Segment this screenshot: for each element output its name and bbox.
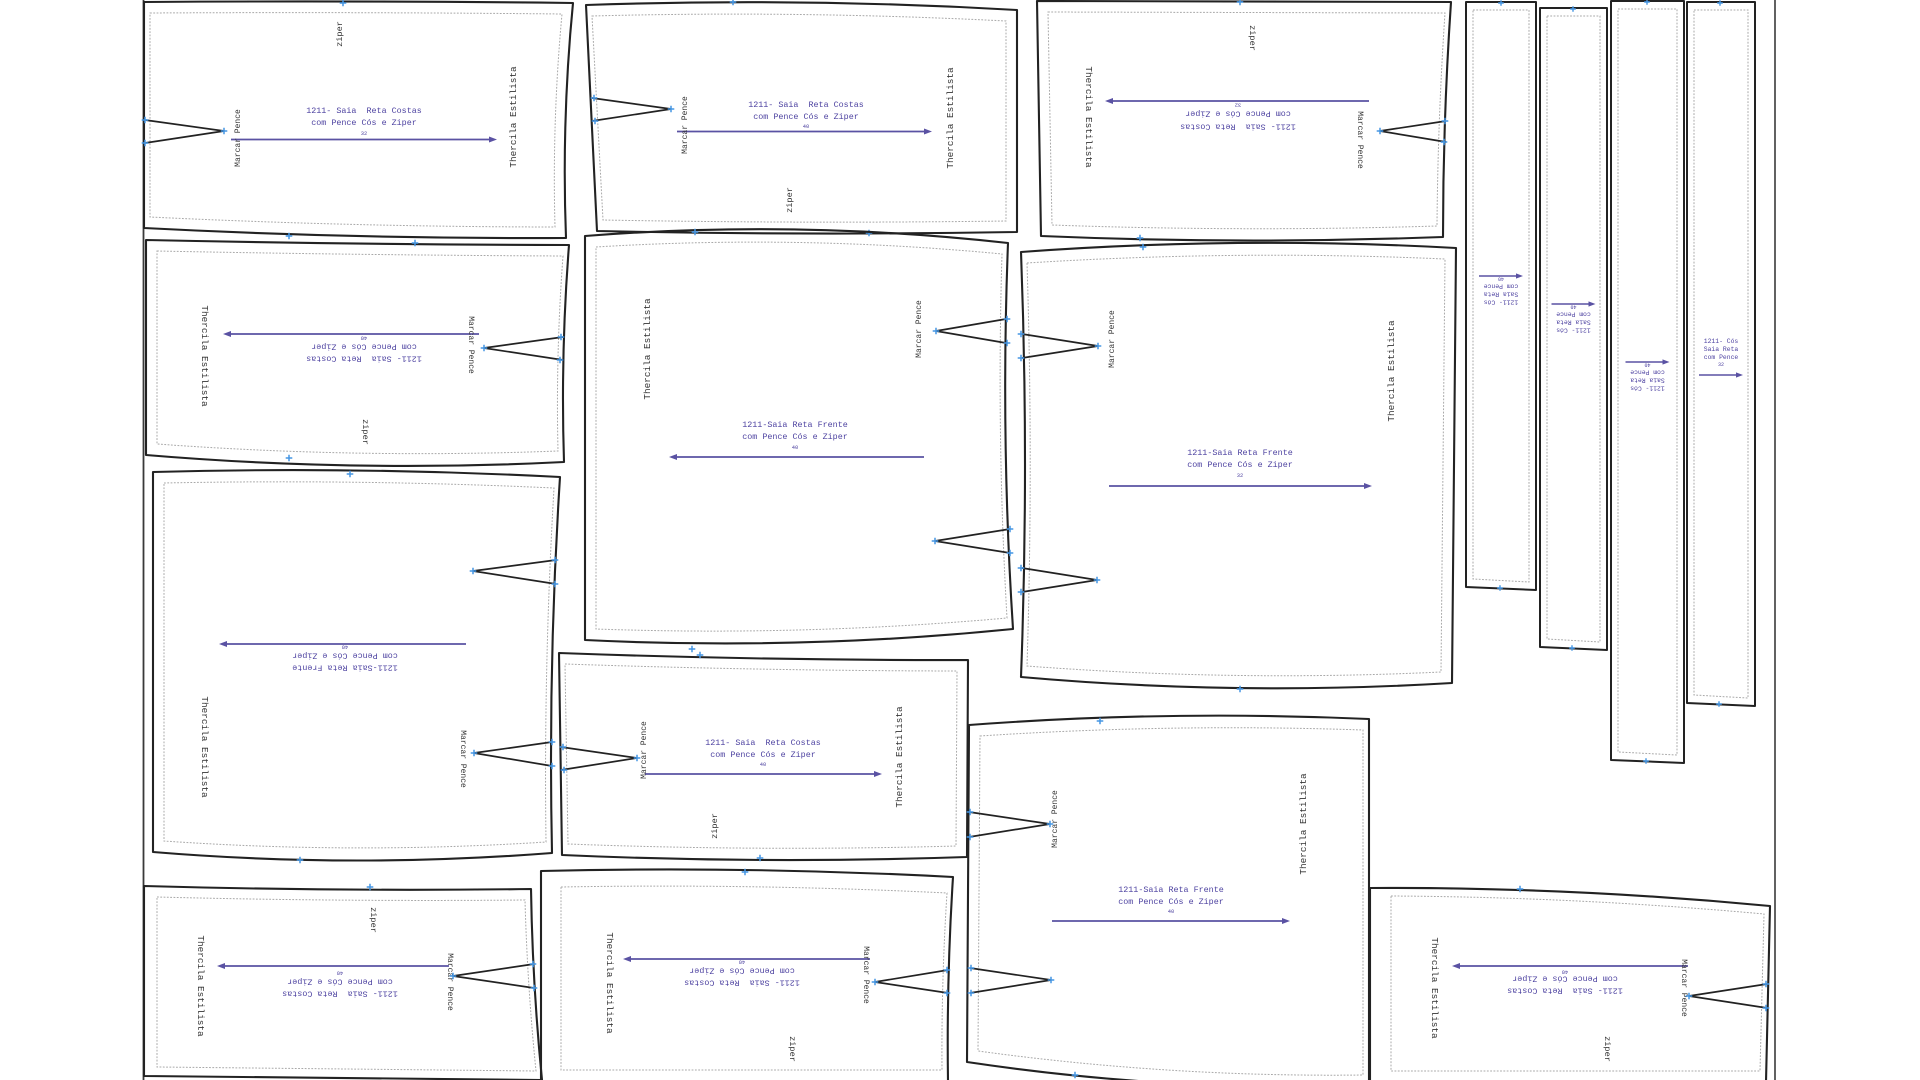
svg-text:1211- Saia Reta Costas: 1211- Saia Reta Costas [306,106,422,116]
svg-text:ziper: ziper [710,813,720,839]
svg-text:1211- Saia Reta Costas: 1211- Saia Reta Costas [748,100,864,110]
svg-text:com Pence: com Pence [1704,354,1739,361]
svg-text:Thercila Estilista: Thercila Estilista [199,305,210,407]
svg-text:32: 32 [1718,362,1724,368]
svg-text:40: 40 [803,124,809,130]
svg-text:Marcar Pence: Marcar Pence [861,946,870,1004]
svg-text:1211- Saia Reta Costas: 1211- Saia Reta Costas [705,738,821,748]
svg-text:1211- Saia Reta Costas: 1211- Saia Reta Costas [282,988,398,998]
svg-text:40: 40 [361,334,367,340]
svg-text:Marcar Pence: Marcar Pence [466,316,475,374]
svg-text:40: 40 [337,969,343,975]
svg-text:32: 32 [1237,473,1243,479]
svg-text:1211-Saia Reta Frente: 1211-Saia Reta Frente [1187,448,1293,458]
svg-text:com Pence: com Pence [1556,310,1591,317]
svg-text:Saia Reta: Saia Reta [1484,290,1519,297]
svg-text:Thercila Estilista: Thercila Estilista [642,298,653,400]
svg-text:1211- Cós: 1211- Cós [1484,298,1519,305]
svg-text:40: 40 [1168,909,1174,915]
svg-text:Thercila Estilista: Thercila Estilista [604,932,615,1034]
svg-text:com Pence Cós e Ziper: com Pence Cós e Ziper [1185,108,1291,118]
svg-text:1211- Cós: 1211- Cós [1630,384,1665,391]
svg-text:1211-Saia Reta Frente: 1211-Saia Reta Frente [742,420,848,430]
svg-text:Marcar Pence: Marcar Pence [234,109,243,167]
svg-text:Saia Reta: Saia Reta [1556,318,1591,325]
svg-text:1211- Cós: 1211- Cós [1556,326,1591,333]
svg-text:1211-Saia Reta Frente: 1211-Saia Reta Frente [292,662,398,672]
svg-text:com Pence: com Pence [1630,368,1665,375]
svg-text:40: 40 [1644,361,1650,367]
svg-text:com Pence Cós e Ziper: com Pence Cós e Ziper [689,965,795,975]
svg-text:40: 40 [1562,968,1568,974]
svg-text:40: 40 [760,762,766,768]
svg-text:Thercila Estilista: Thercila Estilista [1429,937,1440,1039]
svg-text:ziper: ziper [368,907,378,933]
svg-text:Marcar Pence: Marcar Pence [458,730,467,788]
svg-text:Marcar Pence: Marcar Pence [1355,111,1364,169]
svg-text:1211- Saia Reta Costas: 1211- Saia Reta Costas [684,977,800,987]
svg-text:ziper: ziper [787,1036,797,1062]
svg-text:ziper: ziper [1247,25,1257,51]
svg-text:Thercila Estilista: Thercila Estilista [195,935,206,1037]
svg-text:Marcar Pence: Marcar Pence [1108,310,1117,368]
svg-text:1211- Cós: 1211- Cós [1704,338,1739,345]
svg-text:32: 32 [361,131,367,137]
svg-text:ziper: ziper [785,187,795,213]
svg-text:1211- Saia Reta Costas: 1211- Saia Reta Costas [1507,985,1623,995]
svg-text:40: 40 [739,958,745,964]
svg-text:40: 40 [342,643,348,649]
svg-text:ziper: ziper [360,419,370,445]
svg-text:Marcar Pence: Marcar Pence [681,96,690,154]
svg-text:com Pence Cós e Ziper: com Pence Cós e Ziper [753,112,859,122]
svg-text:com Pence Cós e Ziper: com Pence Cós e Ziper [311,118,417,128]
svg-text:40: 40 [1498,275,1504,281]
svg-text:com Pence Cós e Ziper: com Pence Cós e Ziper [742,432,848,442]
svg-text:Marcar Pence: Marcar Pence [445,953,454,1011]
svg-text:Thercila Estilista: Thercila Estilista [894,706,905,808]
svg-text:32: 32 [1235,101,1241,107]
svg-text:1211- Saia Reta Costas: 1211- Saia Reta Costas [306,353,422,363]
svg-text:com Pence Cós e Ziper: com Pence Cós e Ziper [292,650,398,660]
svg-text:Marcar Pence: Marcar Pence [640,721,649,779]
svg-text:com Pence Cós e Ziper: com Pence Cós e Ziper [1187,460,1293,470]
svg-text:com Pence Cós e Ziper: com Pence Cós e Ziper [710,750,816,760]
svg-text:Thercila Estilista: Thercila Estilista [199,696,210,798]
svg-text:com Pence Cós e Ziper: com Pence Cós e Ziper [311,341,417,351]
svg-text:Thercila Estilista: Thercila Estilista [1083,66,1094,168]
svg-text:ziper: ziper [1602,1036,1612,1062]
svg-text:Saia Reta: Saia Reta [1630,376,1665,383]
svg-text:Thercila Estilista: Thercila Estilista [1386,320,1397,422]
svg-text:com Pence Cós e Ziper: com Pence Cós e Ziper [287,976,393,986]
svg-text:Thercila Estilista: Thercila Estilista [945,67,956,169]
svg-text:1211-Saia Reta Frente: 1211-Saia Reta Frente [1118,885,1224,895]
svg-text:40: 40 [792,445,798,451]
svg-text:Thercila Estilista: Thercila Estilista [1298,773,1309,875]
svg-text:1211- Saia Reta Costas: 1211- Saia Reta Costas [1180,121,1296,131]
svg-text:Thercila Estilista: Thercila Estilista [508,66,519,168]
svg-text:Marcar Pence: Marcar Pence [1679,959,1688,1017]
svg-text:ziper: ziper [335,21,345,47]
svg-text:com Pence Cós e Ziper: com Pence Cós e Ziper [1118,897,1224,907]
svg-text:Saia Reta: Saia Reta [1704,346,1739,353]
svg-text:40: 40 [1570,303,1576,309]
svg-text:Marcar Pence: Marcar Pence [915,300,924,358]
svg-text:Marcar Pence: Marcar Pence [1051,790,1060,848]
svg-text:com Pence: com Pence [1484,282,1519,289]
